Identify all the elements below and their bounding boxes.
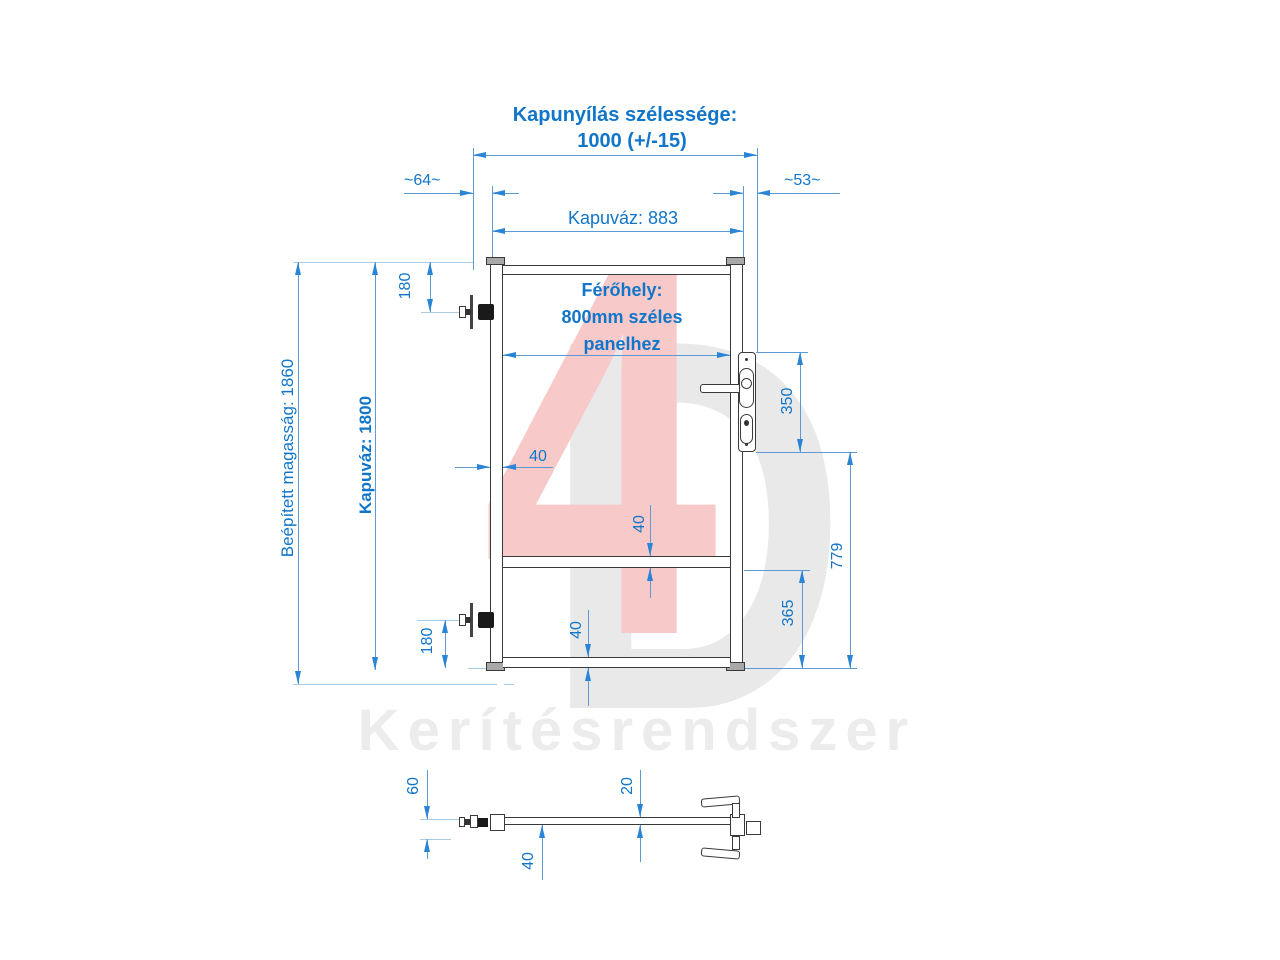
section-lock-cylinder: [746, 821, 761, 835]
dim-frame-width-line: [492, 231, 743, 232]
section-depth-label: 40: [520, 852, 538, 870]
ext-ground-level: [293, 684, 497, 685]
dim-lock-bottom-line: [850, 452, 851, 668]
dim-arrow: [637, 804, 643, 817]
opening-width-title: Kapunyílás szélessége:: [513, 104, 738, 127]
dim-arrow: [295, 671, 301, 684]
dim-arrow: [503, 464, 516, 470]
section-left-post: [490, 814, 505, 831]
dim-arrow: [424, 806, 430, 819]
dim-built-height-line: [298, 262, 299, 684]
dim-arrow: [295, 262, 301, 275]
dim-arrow: [424, 839, 430, 852]
midrail-to-bottom-label: 365: [780, 600, 798, 627]
lock-screw: [745, 443, 748, 446]
dim-arrow: [503, 352, 516, 358]
dim-arrow: [460, 190, 473, 196]
ext-frame-left: [492, 186, 493, 257]
lock-screw: [745, 358, 748, 361]
hinge-top-shaft: [466, 309, 471, 315]
fit-label-line3: panelhez: [583, 334, 660, 355]
ext-lock-bottom: [756, 452, 857, 453]
section-bar-thickness-label: 20: [619, 777, 637, 795]
lock-handle: [700, 384, 744, 393]
ext-hinge-top-axis: [421, 312, 463, 313]
fit-label-line2: 800mm széles: [561, 307, 682, 328]
dim-arrow: [744, 152, 757, 158]
dim-arrow: [730, 228, 743, 234]
dim-fit-span-line: [503, 355, 730, 356]
ext-top-level: [293, 262, 473, 263]
ext-frame-right: [743, 186, 744, 257]
hinge-bottom-bolt-head: [459, 614, 466, 626]
hinge-bottom-offset-label: 180: [419, 628, 437, 655]
dim-arrow: [647, 543, 653, 556]
dim-arrow: [847, 655, 853, 668]
dim-arrow: [797, 352, 803, 365]
post-cap: [726, 257, 745, 265]
dim-arrow: [477, 464, 490, 470]
ext-hinge-bottom-axis: [417, 620, 460, 621]
ext-ground-dash: [504, 684, 514, 685]
dim-arrow: [585, 668, 591, 681]
section-hinge-offset-label: 60: [405, 777, 423, 795]
dim-arrow: [372, 262, 378, 275]
ext-opening-left: [473, 148, 474, 270]
gate-bottom-rail: [503, 657, 730, 668]
bottomrail-thickness-label: 40: [568, 621, 586, 639]
section-handle-top-neck: [732, 803, 740, 818]
dim-arrow: [372, 657, 378, 670]
hinge-top-offset-label: 180: [397, 273, 415, 300]
dim-arrow: [717, 352, 730, 358]
section-hinge-nut: [470, 815, 478, 828]
hinge-bottom-body: [478, 612, 494, 628]
section-hinge-body: [478, 818, 488, 827]
gate-right-post: [730, 262, 743, 670]
section-handle-bottom-neck: [732, 836, 740, 850]
lock-handle-hub: [741, 378, 752, 389]
midrail-thickness-label: 40: [631, 515, 649, 533]
dim-arrow: [585, 644, 591, 657]
dim-arrow: [847, 452, 853, 465]
lock-to-bottom-label: 779: [829, 543, 847, 570]
post-width-label: 40: [529, 448, 547, 466]
gate-middle-rail: [503, 556, 730, 568]
gate-left-post: [490, 262, 503, 670]
hinge-top-body: [478, 304, 494, 320]
frame-height-label: Kapuváz: 1800: [356, 396, 376, 514]
lock-keyhole: [740, 414, 753, 444]
dim-arrow: [473, 152, 486, 158]
lock-key-dot: [744, 420, 749, 426]
dim-arrow: [427, 262, 433, 275]
section-hinge-axis: [420, 819, 462, 820]
dim-lock-height-line: [800, 352, 801, 452]
section-gate-bar: [503, 817, 733, 825]
dim-arrow: [797, 439, 803, 452]
dim-arrow: [539, 825, 545, 838]
dim-arrow: [442, 620, 448, 633]
left-gap-label: ~64~: [404, 172, 440, 190]
fit-label-line1: Férőhely:: [581, 280, 662, 301]
dim-arrow: [492, 190, 505, 196]
dim-arrow: [427, 299, 433, 312]
frame-width-label: Kapuváz: 883: [568, 208, 678, 229]
lock-height-label: 350: [779, 388, 797, 415]
dim-arrow: [757, 190, 770, 196]
watermark-brand-text: Kerítésrendszer: [358, 702, 916, 760]
technical-drawing-canvas: D 4 Kerítésrendszer Kapunyílás szélesség…: [0, 0, 1280, 960]
dim-arrow: [637, 825, 643, 838]
hinge-top-bolt-head: [459, 306, 466, 318]
dim-arrow: [799, 655, 805, 668]
ext-opening-right: [757, 148, 758, 352]
dim-arrow: [442, 655, 448, 668]
dim-opening-width-line: [473, 155, 757, 156]
right-gap-label: ~53~: [784, 172, 820, 190]
post-cap: [486, 257, 505, 265]
ext-bottom-right: [744, 668, 857, 669]
opening-width-value: 1000 (+/-15): [577, 130, 687, 153]
dim-arrow: [799, 570, 805, 583]
gate-top-rail: [503, 265, 730, 275]
dim-midrail-bottom-line: [802, 570, 803, 668]
built-height-label: Beépített magasság: 1860: [278, 359, 298, 557]
hinge-bottom-shaft: [466, 617, 471, 623]
dim-arrow: [730, 190, 743, 196]
dim-arrow: [647, 568, 653, 581]
dim-arrow: [492, 228, 505, 234]
